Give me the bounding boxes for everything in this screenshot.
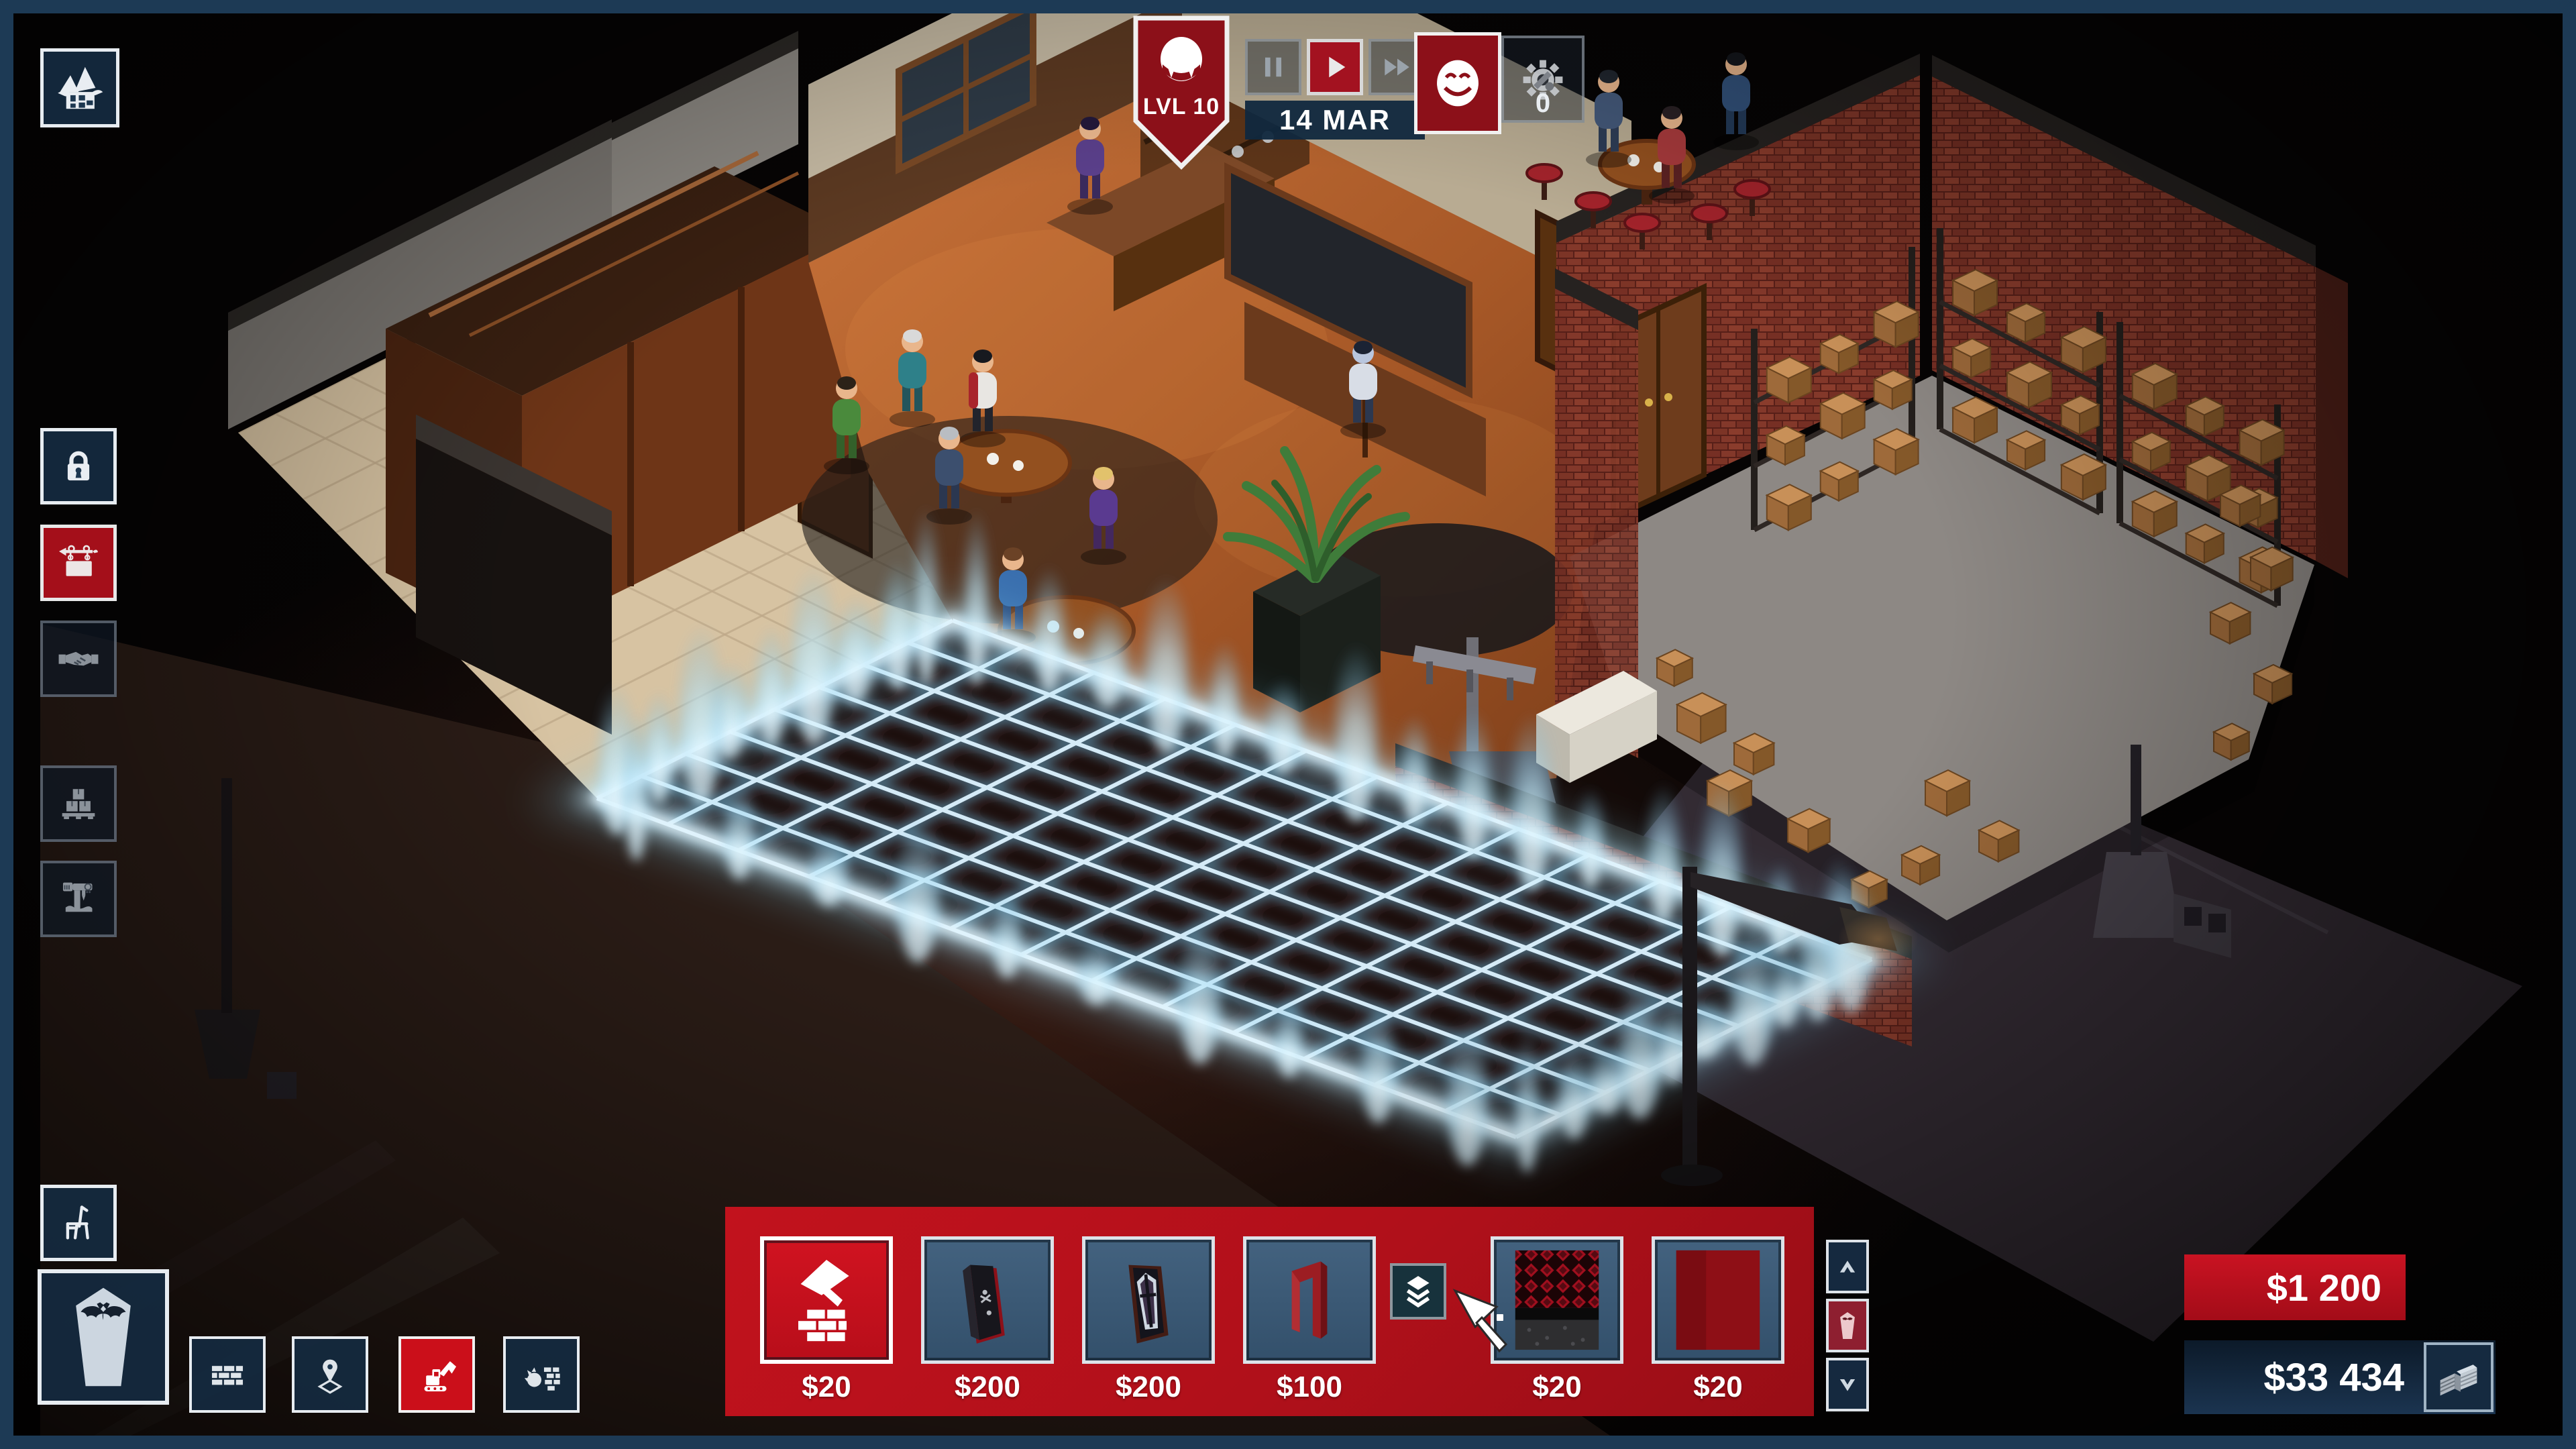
layers-icon — [1401, 1273, 1436, 1310]
repairs-count: 0 — [1504, 89, 1582, 119]
pallet-boxes-icon — [57, 782, 100, 825]
build-item-coffin-window-door[interactable] — [1082, 1236, 1215, 1364]
scroll-page-indicator[interactable] — [1826, 1299, 1869, 1352]
price-label: $20 — [760, 1371, 893, 1404]
cash-stack-icon — [2434, 1353, 2483, 1401]
haunted-house-icon — [54, 62, 106, 114]
build-item-dark-door[interactable] — [921, 1236, 1054, 1364]
lock-icon — [58, 445, 99, 487]
carpet-red-icon — [1668, 1246, 1768, 1354]
build-item-red-carpet[interactable] — [1652, 1236, 1784, 1364]
vampire-head-icon — [1161, 37, 1202, 81]
price-label: $200 — [1082, 1371, 1215, 1404]
handshake-icon — [57, 637, 100, 680]
build-item-diamond-carpet[interactable] — [1491, 1236, 1623, 1364]
walls-tool-button[interactable] — [189, 1336, 266, 1413]
highlight-amount: $1 200 — [2184, 1254, 2406, 1320]
excavator-icon — [415, 1352, 459, 1397]
level-label: LVL 10 — [1132, 94, 1230, 120]
date-display: 14 MAR — [1245, 101, 1425, 140]
furniture-button[interactable] — [40, 1185, 117, 1261]
price-label: $100 — [1243, 1371, 1376, 1404]
coffin-button[interactable] — [38, 1269, 169, 1405]
door-frame-icon — [1269, 1253, 1350, 1347]
door-window-icon — [1108, 1253, 1189, 1347]
shop-sign-icon — [56, 541, 101, 585]
sidebar-item-signage[interactable] — [40, 525, 117, 601]
coffin-bat-icon — [63, 1283, 144, 1391]
price-label: $20 — [1491, 1371, 1623, 1404]
price-label: $20 — [1652, 1371, 1784, 1404]
pause-button[interactable] — [1245, 39, 1301, 95]
build-item-brick-wall[interactable] — [760, 1236, 893, 1364]
excavate-tool-button[interactable] — [398, 1336, 475, 1413]
balance-amount: $33 434 — [2263, 1355, 2404, 1400]
zones-tool-button[interactable] — [292, 1336, 368, 1413]
build-toolbar: $20 $200 — [725, 1207, 1814, 1416]
balance-bar: $33 434 — [2184, 1340, 2495, 1414]
play-button[interactable] — [1307, 39, 1363, 95]
carpet-diamond-icon — [1507, 1246, 1607, 1354]
play-icon — [1320, 52, 1350, 83]
repairs-button[interactable]: 0 — [1501, 36, 1585, 123]
wrecking-ball-icon — [519, 1352, 563, 1397]
sidebar-item-stock[interactable] — [40, 765, 117, 842]
brick-wall-icon — [206, 1353, 249, 1396]
mood-button[interactable] — [1414, 32, 1501, 134]
door-solid-icon — [947, 1253, 1028, 1347]
drill-press-icon — [57, 877, 100, 920]
chair-icon — [58, 1202, 99, 1244]
layers-button[interactable] — [1390, 1263, 1446, 1320]
game-viewport: LVL 10 14 MAR — [13, 13, 2563, 1436]
sidebar-item-security[interactable] — [40, 428, 117, 504]
smiley-face-icon — [1429, 54, 1487, 112]
scroll-down-button[interactable] — [1826, 1358, 1869, 1411]
arrow-up-icon — [1834, 1252, 1861, 1281]
pause-icon — [1258, 52, 1289, 83]
sidebar-item-workshop[interactable] — [40, 861, 117, 937]
scroll-up-button[interactable] — [1826, 1240, 1869, 1293]
arrow-down-icon — [1834, 1370, 1861, 1399]
location-pin-icon — [309, 1353, 352, 1396]
build-item-door-frame[interactable] — [1243, 1236, 1376, 1364]
map-button[interactable] — [40, 48, 119, 127]
coffin-icon — [1836, 1310, 1859, 1341]
sidebar-item-deals[interactable] — [40, 621, 117, 697]
finances-button[interactable] — [2424, 1342, 2493, 1412]
brick-trowel-icon — [786, 1256, 867, 1344]
demolish-tool-button[interactable] — [503, 1336, 580, 1413]
level-badge: LVL 10 — [1132, 15, 1230, 170]
price-label: $200 — [921, 1371, 1054, 1404]
fast-forward-icon — [1380, 52, 1413, 83]
